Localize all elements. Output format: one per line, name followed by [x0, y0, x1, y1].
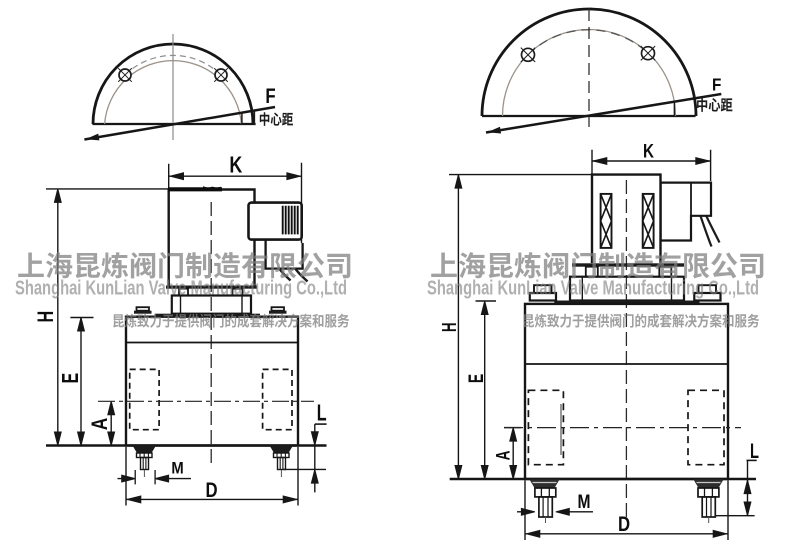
svg-text:M: M — [171, 459, 183, 477]
svg-text:K: K — [229, 152, 242, 178]
svg-text:Shanghai KunLian Valve Manufac: Shanghai KunLian Valve Manufacturing Co.… — [15, 278, 347, 300]
svg-text:D: D — [618, 513, 630, 536]
svg-text:M: M — [578, 490, 591, 512]
svg-text:F: F — [712, 74, 721, 94]
svg-text:A: A — [88, 418, 113, 430]
svg-text:D: D — [205, 479, 217, 502]
svg-text:H: H — [438, 323, 460, 333]
svg-text:E: E — [58, 373, 84, 384]
svg-text:L: L — [317, 401, 327, 426]
svg-text:H: H — [34, 311, 59, 323]
svg-text:E: E — [464, 374, 488, 383]
svg-text:A: A — [492, 451, 514, 461]
svg-text:K: K — [643, 140, 654, 162]
svg-text:F: F — [265, 85, 275, 108]
svg-text:L: L — [750, 439, 759, 462]
svg-text:Shanghai KunLian Valve Manufac: Shanghai KunLian Valve Manufacturing Co.… — [427, 278, 759, 300]
